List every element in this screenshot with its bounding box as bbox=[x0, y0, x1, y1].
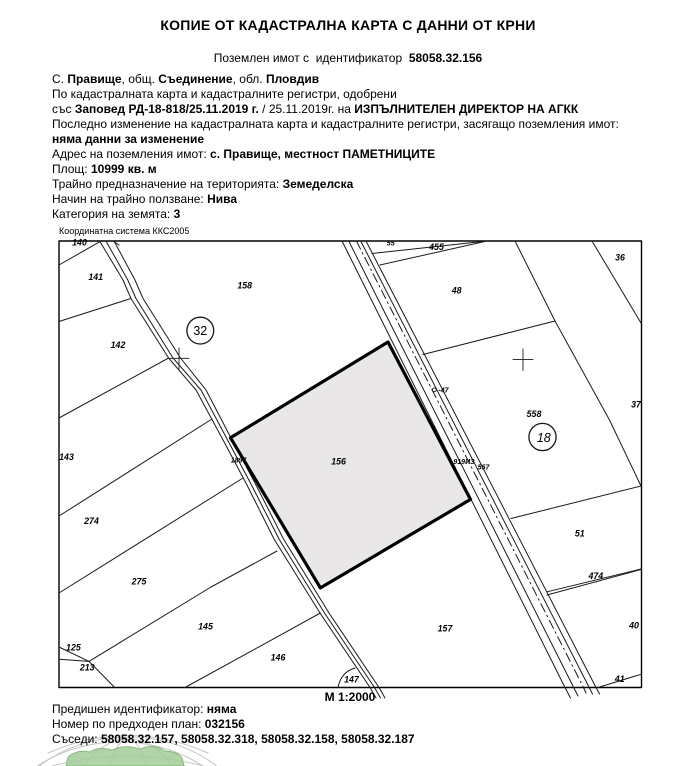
svg-text:919ИЗ: 919ИЗ bbox=[453, 459, 475, 466]
svg-text:40: 40 bbox=[628, 621, 639, 631]
svg-text:37: 37 bbox=[631, 400, 642, 410]
svg-text:18: 18 bbox=[537, 431, 551, 445]
svg-text:142: 142 bbox=[111, 340, 126, 350]
svg-text:140: 140 bbox=[72, 238, 87, 248]
svg-text:474: 474 bbox=[587, 571, 603, 581]
svg-text:55: 55 bbox=[387, 241, 395, 248]
svg-text:146: 146 bbox=[271, 653, 286, 663]
svg-text:156: 156 bbox=[331, 457, 346, 467]
svg-text:158: 158 bbox=[237, 280, 252, 290]
svg-text:157: 157 bbox=[438, 624, 454, 634]
svg-text:48: 48 bbox=[451, 286, 462, 296]
svg-text:557: 557 bbox=[478, 465, 491, 472]
svg-text:147: 147 bbox=[344, 675, 360, 685]
svg-text:558: 558 bbox=[527, 409, 542, 419]
svg-text:141: 141 bbox=[88, 272, 103, 282]
svg-text:41: 41 bbox=[614, 674, 625, 684]
svg-text:-47: -47 bbox=[438, 388, 449, 395]
svg-text:36: 36 bbox=[615, 253, 625, 263]
svg-text:143: 143 bbox=[59, 452, 74, 462]
svg-text:274: 274 bbox=[83, 516, 99, 526]
svg-text:51: 51 bbox=[575, 529, 585, 539]
svg-text:32: 32 bbox=[193, 324, 207, 338]
svg-text:275: 275 bbox=[131, 577, 147, 587]
svg-text:455: 455 bbox=[428, 242, 444, 252]
svg-text:145: 145 bbox=[198, 622, 213, 632]
svg-text:125: 125 bbox=[66, 643, 81, 653]
svg-text:1897: 1897 bbox=[231, 458, 248, 465]
svg-text:213: 213 bbox=[79, 663, 95, 673]
